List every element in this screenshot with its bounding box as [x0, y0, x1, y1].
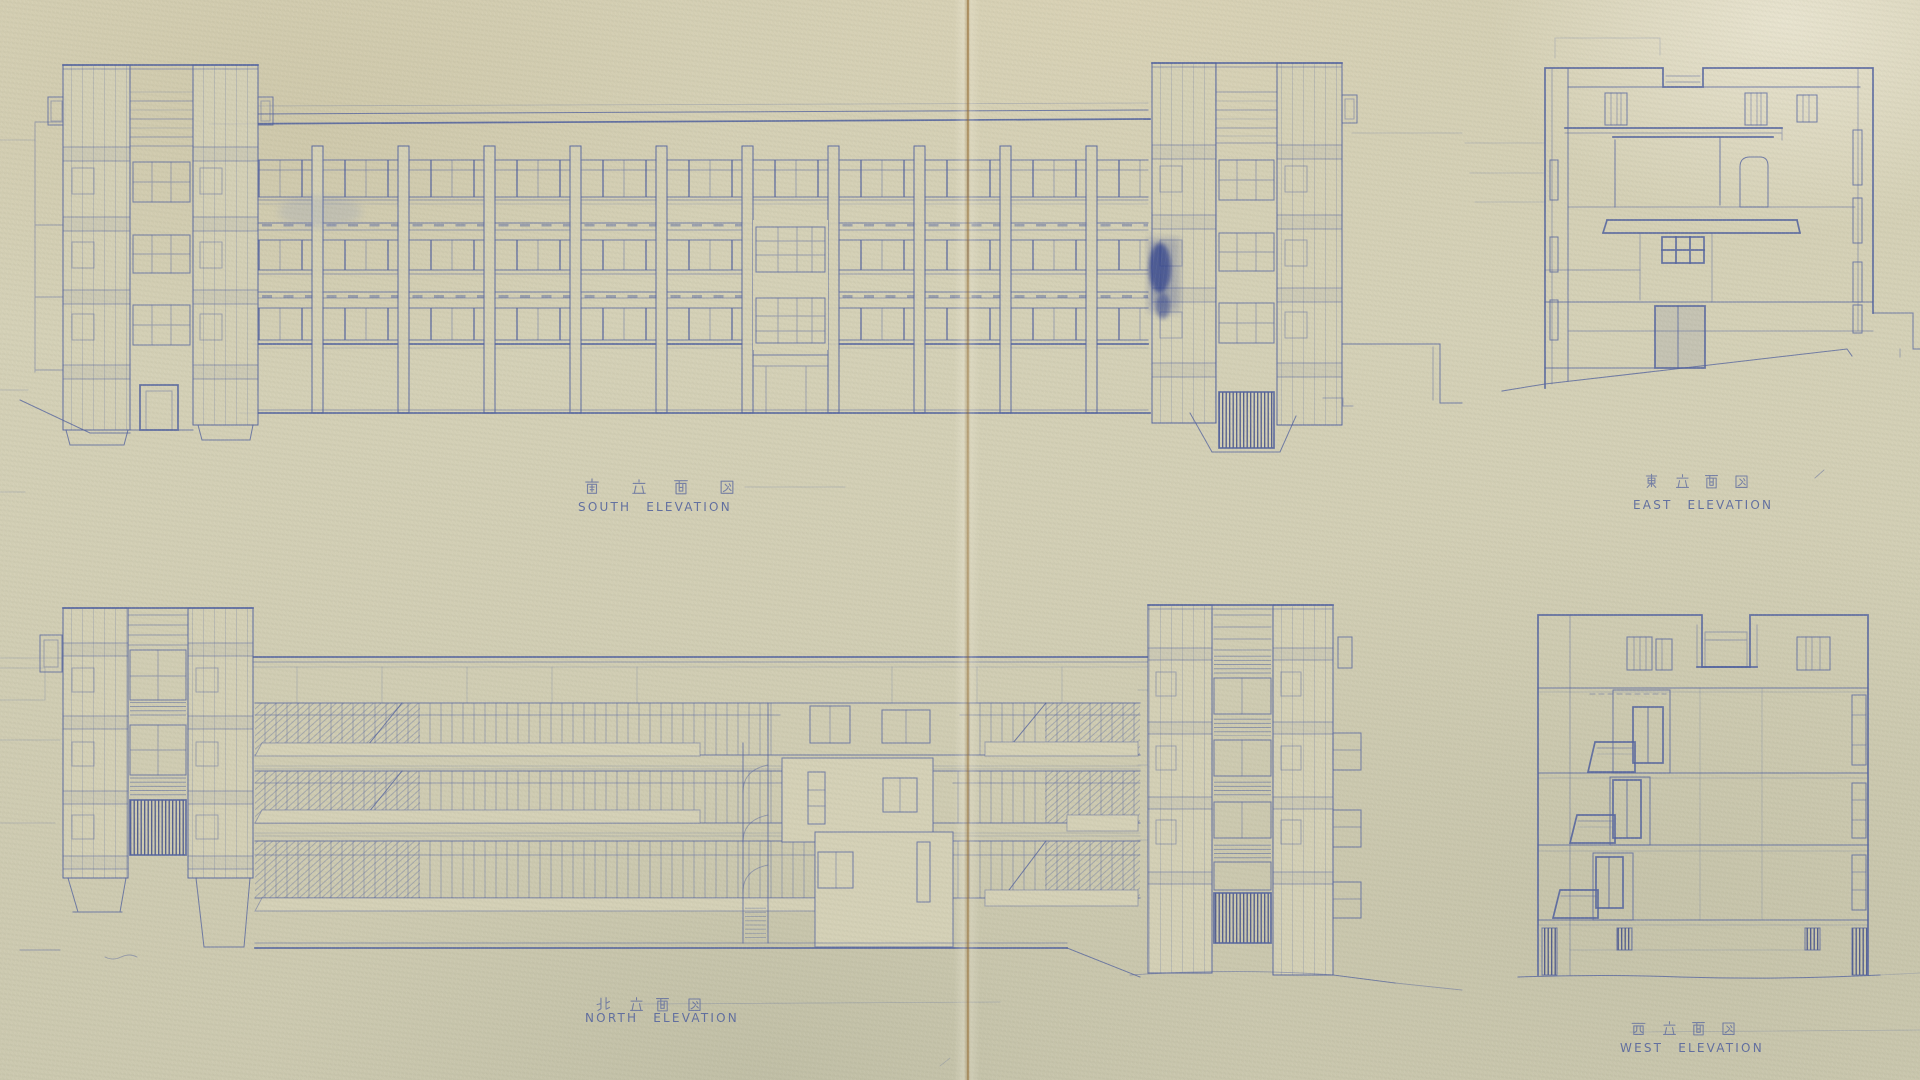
east-elevation-drawing [1502, 38, 1920, 478]
north-band-2 [255, 771, 1140, 831]
east-elevation-kanji [1646, 474, 1747, 488]
west-balconies [1553, 690, 1670, 920]
east-elevation-label: EAST ELEVATION [1633, 474, 1773, 512]
north-band-1 [255, 703, 1140, 756]
elevation-drawings: SOUTH ELEVATION EAST ELEVATION NORTH ELE… [0, 0, 1920, 1080]
ink-blot [1148, 238, 1180, 319]
south-entrance-bay [753, 220, 828, 413]
north-left-tower [20, 608, 253, 959]
south-elevation-drawing [0, 63, 1545, 492]
south-elevation-kanji [586, 479, 733, 494]
blueprint-sheet: SOUTH ELEVATION EAST ELEVATION NORTH ELE… [0, 0, 1920, 1080]
north-elevation-title: NORTH ELEVATION [585, 1011, 739, 1025]
west-elevation-kanji [1632, 1022, 1734, 1035]
south-right-tower [1148, 63, 1462, 452]
east-elevation-title: EAST ELEVATION [1633, 498, 1773, 512]
west-elevation-label: WEST ELEVATION [1620, 1022, 1764, 1055]
north-right-tower [1130, 605, 1462, 990]
north-band-3 [255, 841, 1140, 911]
north-elevation-label: NORTH ELEVATION [585, 998, 739, 1025]
south-left-tower [20, 65, 273, 445]
south-elevation-label: SOUTH ELEVATION [578, 479, 845, 514]
north-elevation-drawing [0, 605, 1462, 1004]
west-elevation-title: WEST ELEVATION [1620, 1041, 1764, 1055]
south-elevation-title: SOUTH ELEVATION [578, 500, 732, 514]
